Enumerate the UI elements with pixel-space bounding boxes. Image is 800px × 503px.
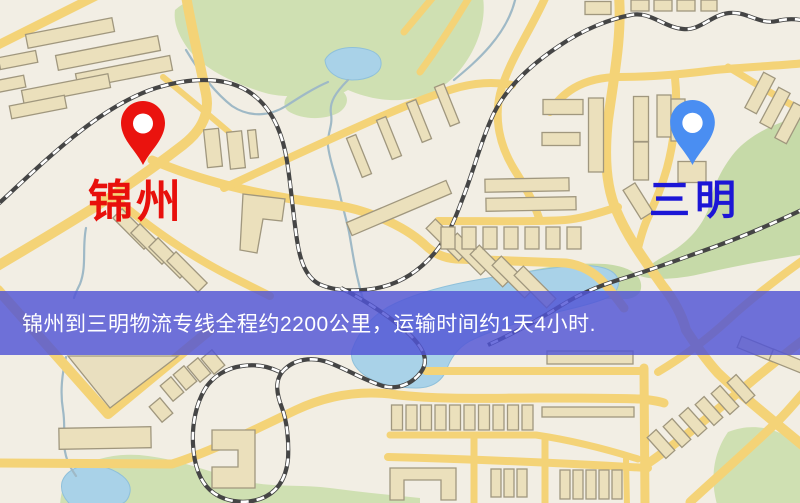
origin-city-label: 锦州 bbox=[88, 179, 184, 224]
route-info-banner: 锦州到三明物流专线全程约2200公里，运输时间约1天4小时. bbox=[0, 291, 800, 355]
destination-marker-icon bbox=[670, 100, 715, 165]
route-info-text: 锦州到三明物流专线全程约2200公里，运输时间约1天4小时. bbox=[0, 308, 596, 338]
destination-city-label: 三明 bbox=[649, 180, 741, 221]
logistics-route-map: 锦州 三明 锦州到三明物流专线全程约2200公里，运输时间约1天4小时. bbox=[0, 0, 800, 503]
map-background bbox=[0, 0, 800, 503]
origin-marker-icon bbox=[121, 101, 165, 165]
